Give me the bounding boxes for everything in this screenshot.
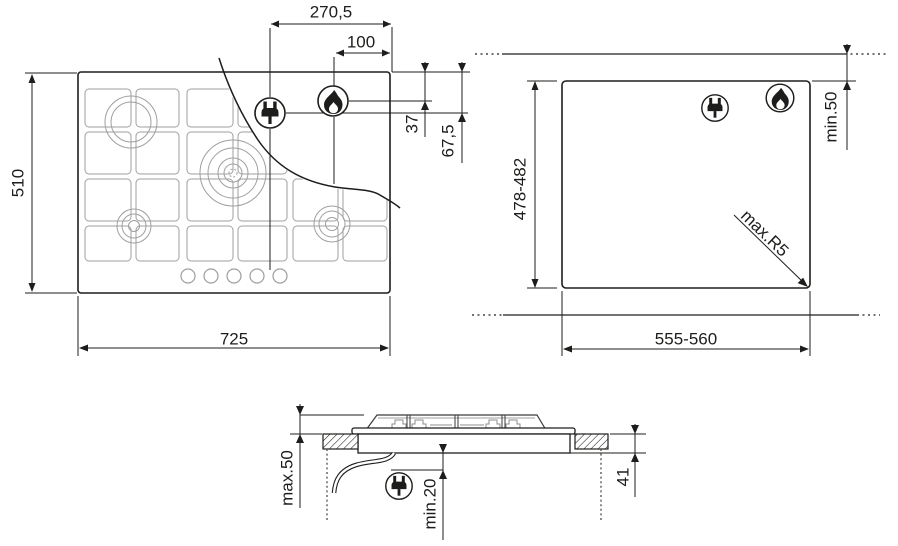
dim-flame-to-edge-label: 100: [347, 32, 375, 51]
dim-plug-to-edge: [271, 21, 391, 28]
power-cable: [334, 453, 394, 493]
power-plug-icon: [386, 473, 412, 499]
dim-min-below-label: min.20: [420, 478, 439, 529]
dim-wall-clearance-label: min.50: [821, 91, 840, 142]
dim-max-above-label: max.50: [277, 450, 296, 506]
gas-flame-icon: [318, 86, 348, 116]
dim-plug-from-top-label: 67,5: [438, 124, 457, 157]
dim-hob-depth-label: 510: [8, 169, 27, 197]
gas-flame-icon: [766, 84, 794, 112]
diagram-canvas: 270,5 100 510 725 37: [0, 0, 898, 546]
dim-recess-depth-label: 41: [613, 468, 632, 487]
hob-top-plate: [352, 428, 575, 434]
dim-hob-depth: [25, 73, 77, 293]
hob-body: [358, 434, 570, 453]
hob-side-section-view: max.50 min.20 41: [277, 404, 646, 540]
hob-installation-diagram: 270,5 100 510 725 37: [0, 0, 898, 546]
dim-cutout-depth-label: 478-482: [510, 158, 529, 220]
dim-flame-from-top: [421, 62, 429, 137]
worktop-section-left: [323, 434, 358, 449]
power-plug-icon: [255, 98, 285, 128]
hob-top-view: 270,5 100 510 725 37: [8, 2, 470, 356]
cutout-outline: [562, 81, 810, 288]
dim-plug-to-edge-label: 270,5: [310, 2, 353, 21]
worktop-cutout-view: 478-482 min.50 555-560 max.R5: [472, 44, 886, 356]
dim-hob-width-label: 725: [220, 329, 248, 348]
worktop-section-right: [575, 434, 608, 449]
dim-flame-from-top-label: 37: [402, 115, 421, 134]
dim-cutout-width-label: 555-560: [655, 329, 717, 348]
dim-cutout-depth: [527, 81, 557, 288]
power-plug-icon: [702, 95, 728, 121]
